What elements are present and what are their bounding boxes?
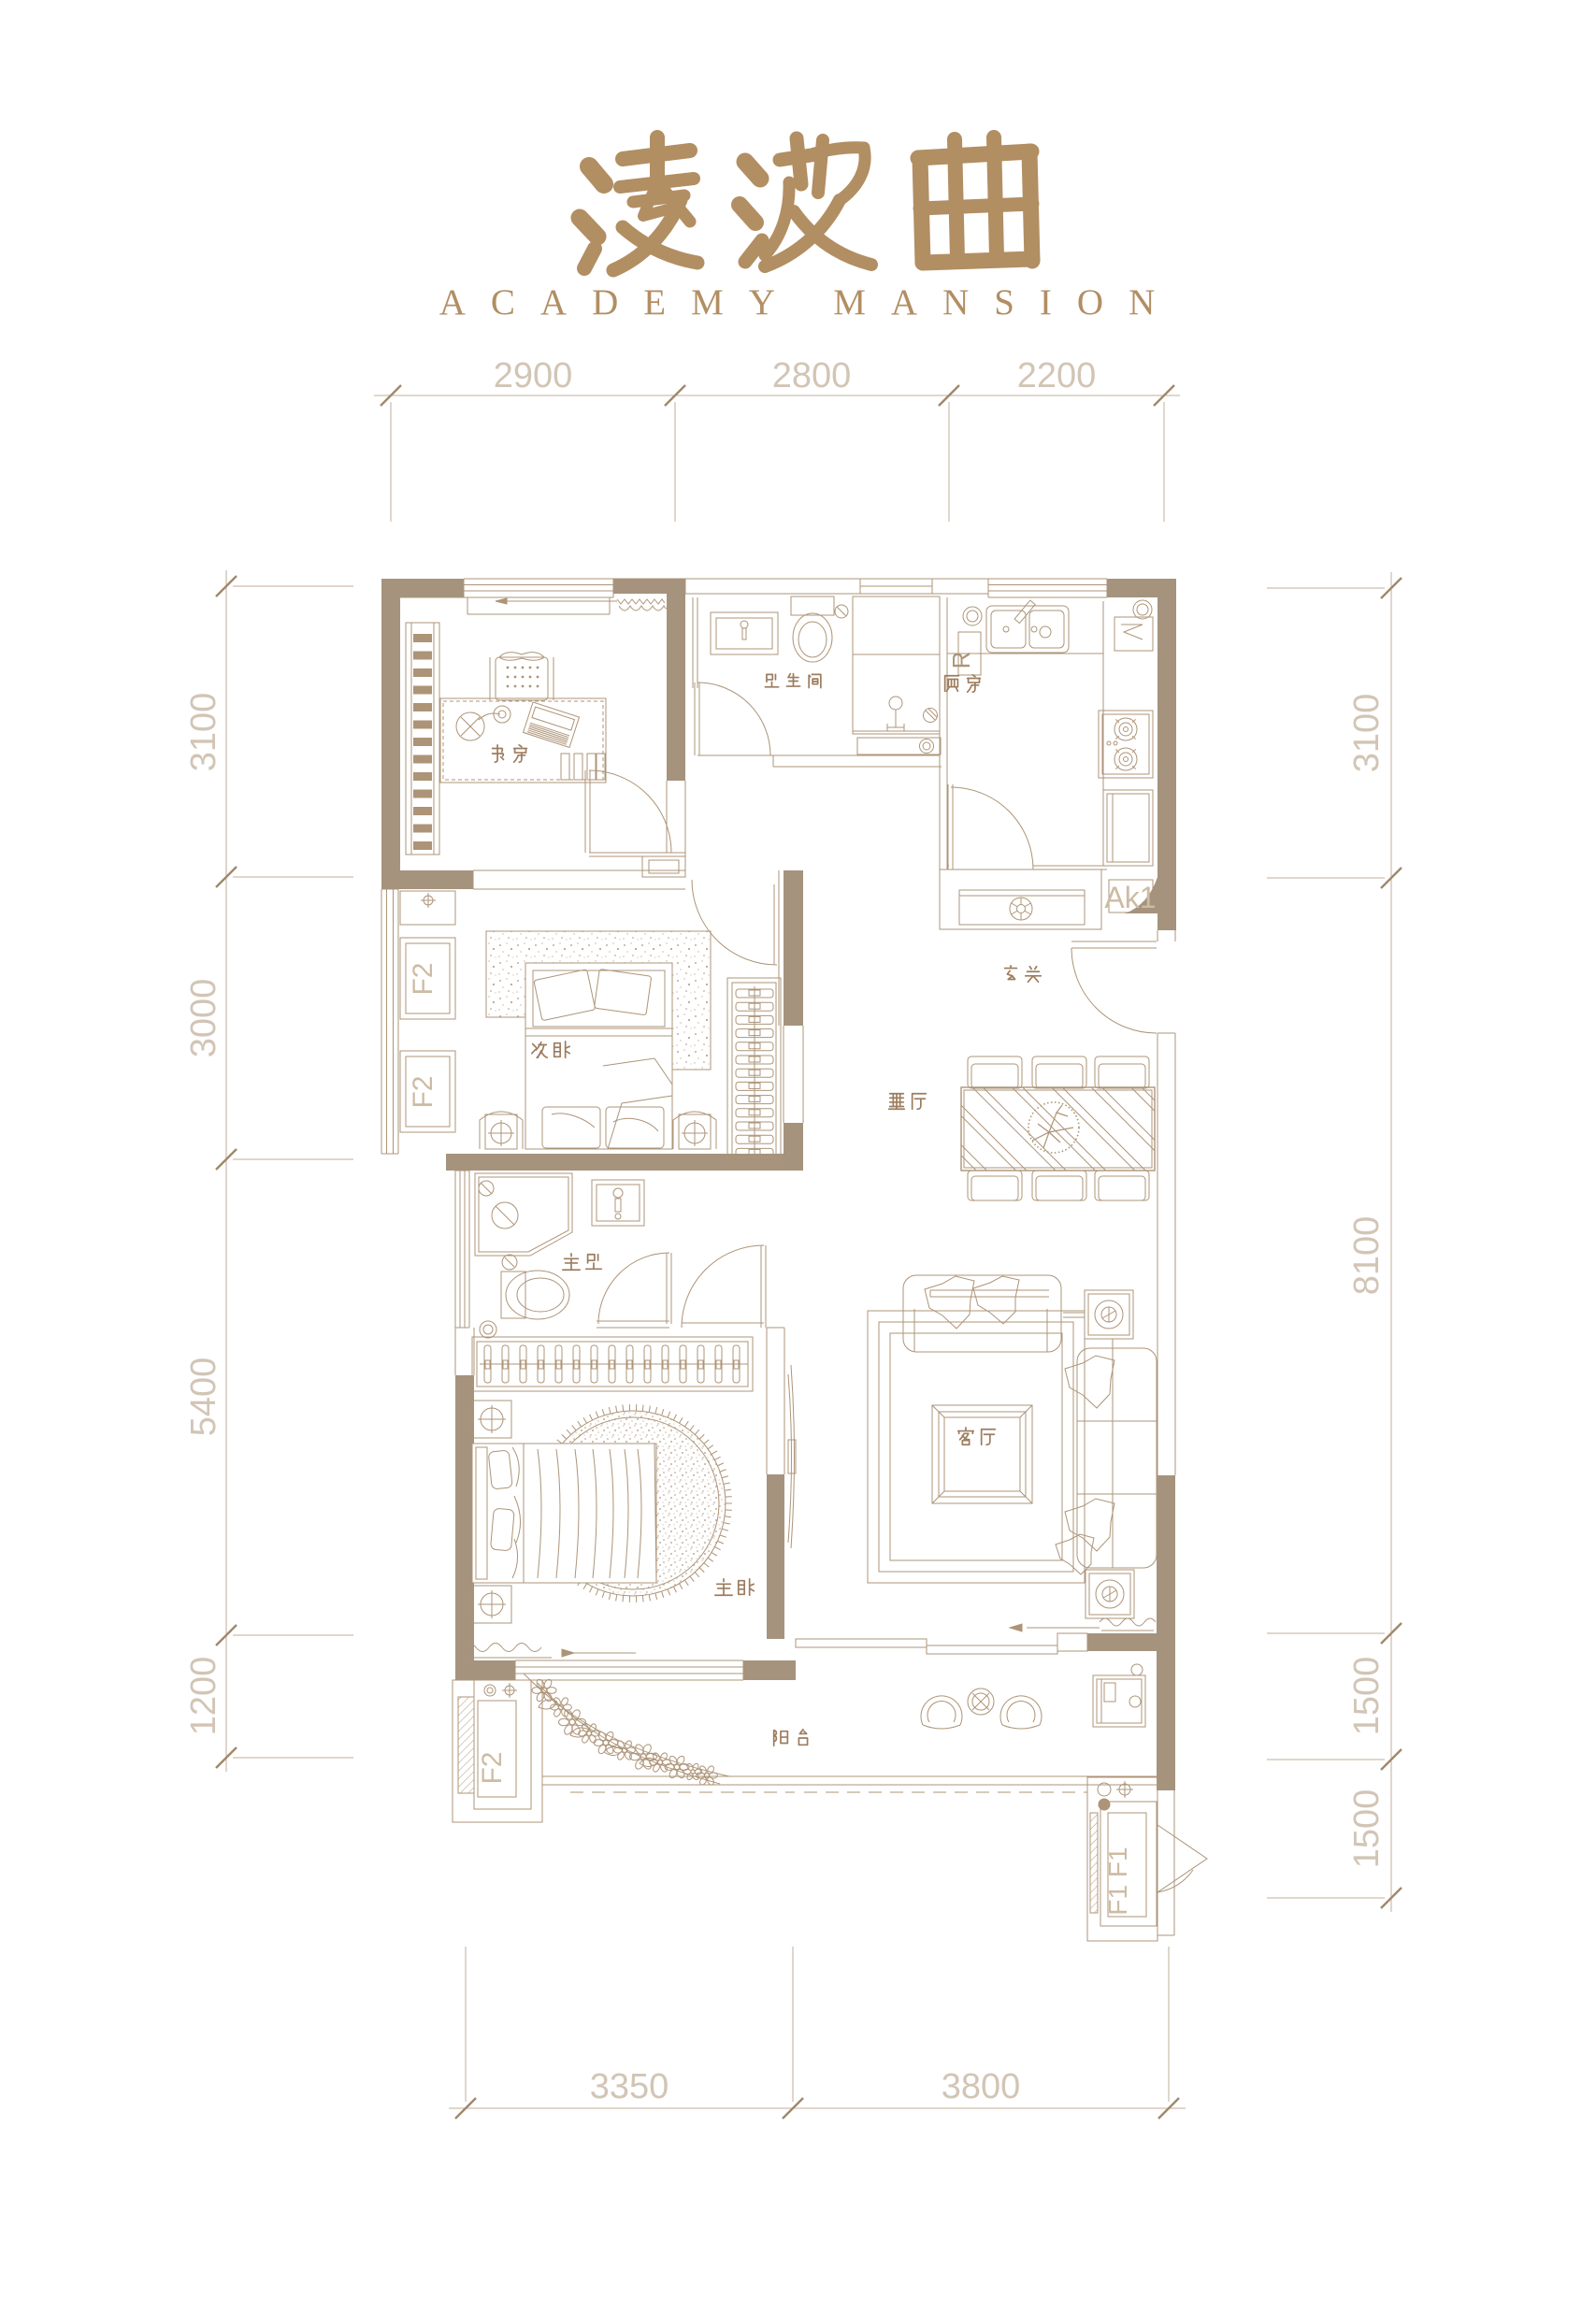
svg-text:3100: 3100	[1347, 694, 1387, 773]
svg-text:F2: F2	[477, 1751, 508, 1784]
svg-text:1500: 1500	[1347, 1657, 1387, 1736]
svg-text:5400: 5400	[184, 1358, 223, 1437]
svg-text:F1 F1: F1 F1	[1103, 1846, 1132, 1915]
svg-text:2900: 2900	[494, 356, 573, 395]
svg-text:3100: 3100	[184, 693, 223, 772]
svg-text:1200: 1200	[184, 1657, 223, 1736]
svg-text:3800: 3800	[942, 2067, 1021, 2106]
svg-text:3000: 3000	[184, 979, 223, 1058]
svg-text:Ak1: Ak1	[1104, 881, 1156, 914]
svg-text:ACADEMY MANSION: ACADEMY MANSION	[439, 282, 1181, 323]
svg-text:2200: 2200	[1017, 356, 1097, 395]
svg-text:8100: 8100	[1347, 1216, 1387, 1296]
svg-text:3350: 3350	[590, 2067, 669, 2106]
svg-text:F2: F2	[408, 962, 439, 995]
svg-text:R: R	[947, 652, 975, 669]
svg-text:1500: 1500	[1347, 1789, 1387, 1869]
svg-text:2800: 2800	[772, 356, 852, 395]
svg-text:F2: F2	[408, 1075, 439, 1108]
